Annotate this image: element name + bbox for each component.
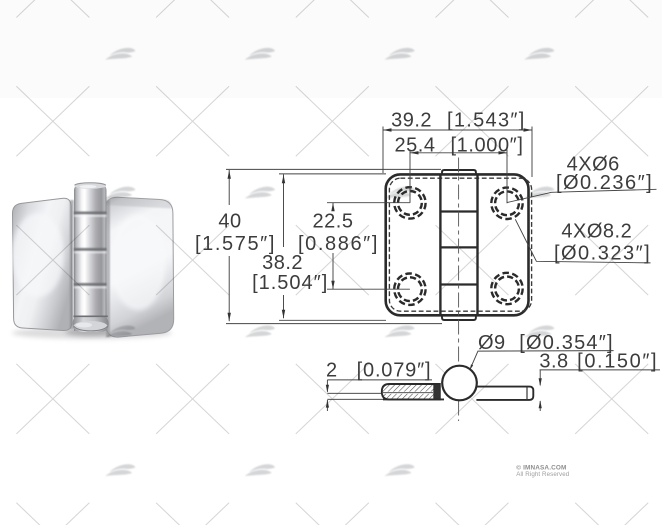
svg-text:[1.000″]: [1.000″] xyxy=(450,134,523,156)
svg-text:4XØ8.2: 4XØ8.2 xyxy=(561,221,632,243)
svg-text:[0.886″]: [0.886″] xyxy=(298,233,379,255)
svg-text:40: 40 xyxy=(218,211,241,233)
svg-text:38.2: 38.2 xyxy=(262,252,303,274)
svg-text:[1.543″]: [1.543″] xyxy=(447,110,526,132)
svg-text:25.4: 25.4 xyxy=(395,134,436,156)
svg-text:[Ø0.323″]: [Ø0.323″] xyxy=(554,243,651,265)
svg-text:[Ø0.236″]: [Ø0.236″] xyxy=(556,172,653,194)
svg-text:3.8: 3.8 xyxy=(539,350,568,372)
svg-text:39.2: 39.2 xyxy=(391,110,432,132)
svg-text:[0.150″]: [0.150″] xyxy=(577,350,658,372)
svg-text:22.5: 22.5 xyxy=(313,211,354,233)
svg-text:Ø9: Ø9 xyxy=(478,332,506,354)
svg-text:[1.504″]: [1.504″] xyxy=(252,272,328,294)
svg-text:2: 2 xyxy=(326,359,338,381)
svg-text:All Right Reserved: All Right Reserved xyxy=(516,471,569,478)
svg-text:[0.079″]: [0.079″] xyxy=(357,359,432,381)
